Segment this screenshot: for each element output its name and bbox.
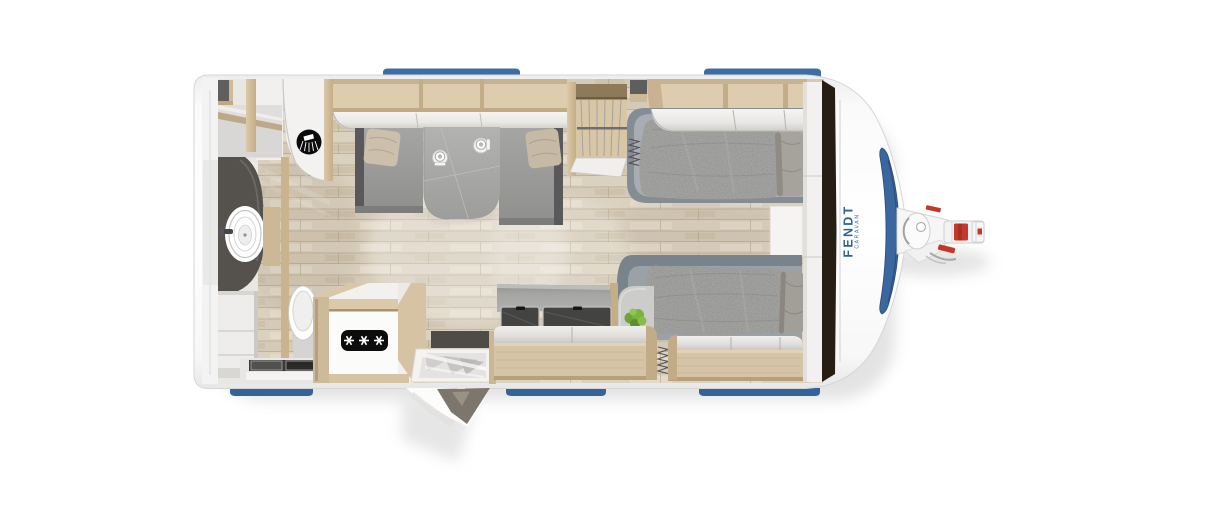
svg-text:FENDT: FENDT (842, 204, 856, 257)
svg-text:CARAVAN: CARAVAN (855, 213, 861, 248)
